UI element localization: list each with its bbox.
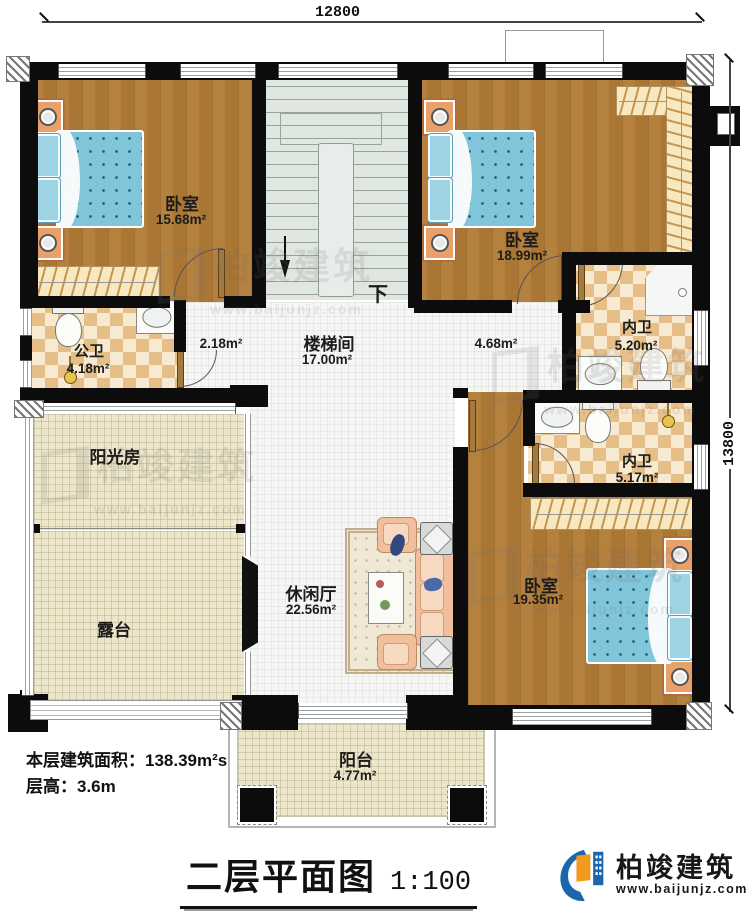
hatch-mark (686, 54, 714, 86)
flue-hole (717, 113, 735, 135)
wall-bath2-bottom (523, 483, 695, 497)
pillow (36, 134, 60, 178)
wall-left-upper (20, 62, 38, 304)
drawing-title: 二层平面图 (186, 856, 376, 897)
inner-bath2-area: 5.17m² (616, 470, 659, 485)
top-dimension-line (42, 21, 702, 23)
corridor-area: 2.18m² (200, 336, 243, 351)
wall-public-bath-right (174, 300, 186, 352)
wardrobe (530, 498, 694, 530)
stairwell-area: 17.00m² (302, 352, 352, 367)
balcony-column (448, 786, 486, 824)
floorplan-canvas: 12800 13800 (0, 0, 750, 918)
pillow (428, 178, 452, 222)
bed (586, 568, 672, 664)
hatch-mark (14, 400, 44, 418)
pillow (668, 616, 692, 660)
bedroom1-area: 15.68m² (156, 212, 206, 227)
tv-icon (242, 556, 258, 652)
terrace-floor (34, 531, 244, 701)
window-bedroom1-a (58, 64, 146, 78)
door-leaf (469, 400, 476, 452)
divider-glass-a (245, 414, 251, 556)
wall-right (692, 62, 710, 714)
sunroom-floor (34, 414, 244, 530)
right-dimension-value: 13800 (721, 418, 738, 469)
window-bedroom3 (512, 709, 652, 725)
drawing-title-block: 二层平面图1:100 (180, 848, 477, 909)
divider-glass-b (245, 652, 251, 696)
bed (56, 130, 144, 228)
wall-bedroom1-bottom-b (224, 296, 266, 308)
nightstand (424, 226, 455, 260)
hall-area: 4.68m² (475, 336, 518, 351)
hatch-mark (6, 56, 30, 82)
toilet-bowl (640, 348, 668, 384)
shower-drain (678, 288, 687, 297)
window-stairwell (278, 64, 398, 78)
wall-bath2-left (523, 396, 535, 446)
bed (448, 130, 536, 228)
sink (534, 400, 580, 434)
hatch-mark (686, 702, 712, 730)
stair-down-label: 下 (368, 278, 388, 307)
stair-top-landing (280, 113, 382, 145)
sunroom-label: 阳光房 (90, 443, 141, 468)
wall-bedroom3-left (453, 447, 468, 712)
leisure-area: 22.56m² (286, 602, 336, 617)
balcony-area: 4.77m² (334, 768, 377, 783)
bedroom2-area: 18.99m² (497, 248, 547, 263)
floor-height-note: 层高：3.6m (26, 772, 116, 797)
floor-area-note: 本层建筑面积：138.39m²s (26, 746, 227, 771)
balcony-column (238, 786, 276, 824)
wall-bath-between (523, 390, 695, 403)
wall-bedroom2-bottom-a (414, 300, 512, 313)
drawing-scale: 1:100 (390, 868, 471, 898)
sofa (415, 548, 457, 646)
window-bedroom2-a (448, 64, 534, 78)
wall-stair-left (252, 80, 266, 308)
bedroom3-area: 19.35m² (513, 592, 563, 607)
company-name: 柏竣建筑 (616, 854, 748, 882)
floor-drain (662, 415, 675, 428)
terrace-label: 露台 (97, 616, 131, 641)
sink (578, 356, 622, 392)
inner-bath1-label: 内卫 (622, 316, 652, 337)
stair-rail (318, 143, 354, 297)
company-url: www.baijunjz.com (616, 882, 748, 896)
company-logo-icon (556, 846, 608, 904)
window-public-bath-b (20, 360, 32, 388)
wall-stair-right (408, 80, 422, 308)
company-logo: 柏竣建筑 www.baijunjz.com (556, 846, 748, 904)
public-bath-label: 公卫 (74, 340, 104, 361)
sunroom-terrace-divider (34, 528, 244, 529)
wall-bath1-top (562, 252, 702, 265)
pillow (36, 178, 60, 222)
window-bedroom1-b (180, 64, 256, 78)
coffee-table (368, 572, 404, 624)
door-leaf (532, 443, 539, 485)
door-leaf (177, 350, 184, 388)
nightstand (664, 538, 695, 572)
window-sunroom-top (34, 403, 236, 414)
stair-arrow-head (280, 260, 290, 278)
accent-chair (420, 522, 453, 555)
hatch-mark (220, 702, 242, 730)
table-plant (380, 600, 390, 610)
window-inner-bath1 (694, 310, 708, 366)
window-balcony-door (298, 703, 408, 719)
window-public-bath-a (20, 308, 32, 336)
public-bath-area: 4.18m² (67, 361, 110, 376)
inner-bath1-area: 5.20m² (615, 338, 658, 353)
nightstand (424, 100, 455, 134)
right-dimension-line (729, 60, 731, 712)
wall-bedroom3-left-stub (453, 388, 468, 398)
toilet-bowl (585, 409, 611, 443)
wall-bath1-left-lower (562, 306, 576, 392)
table-decor (376, 580, 384, 588)
nightstand (664, 660, 695, 694)
pillow (428, 134, 452, 178)
wardrobe (616, 86, 668, 116)
terrace-railing (30, 700, 242, 720)
door-leaf (218, 249, 225, 298)
window-inner-bath2 (694, 444, 708, 490)
top-dimension-value: 12800 (312, 4, 363, 21)
pillow (668, 572, 692, 616)
accent-chair (420, 636, 453, 669)
armchair (377, 634, 417, 670)
wardrobe (34, 266, 160, 298)
window-sunroom-left (22, 410, 34, 696)
window-bedroom2-b (545, 64, 623, 78)
inner-bath2-label: 内卫 (622, 450, 652, 471)
stair-arrow-stem (284, 236, 286, 262)
wall-public-bath-bottom (20, 388, 232, 403)
wall-bedroom1-bottom-a (20, 296, 170, 308)
